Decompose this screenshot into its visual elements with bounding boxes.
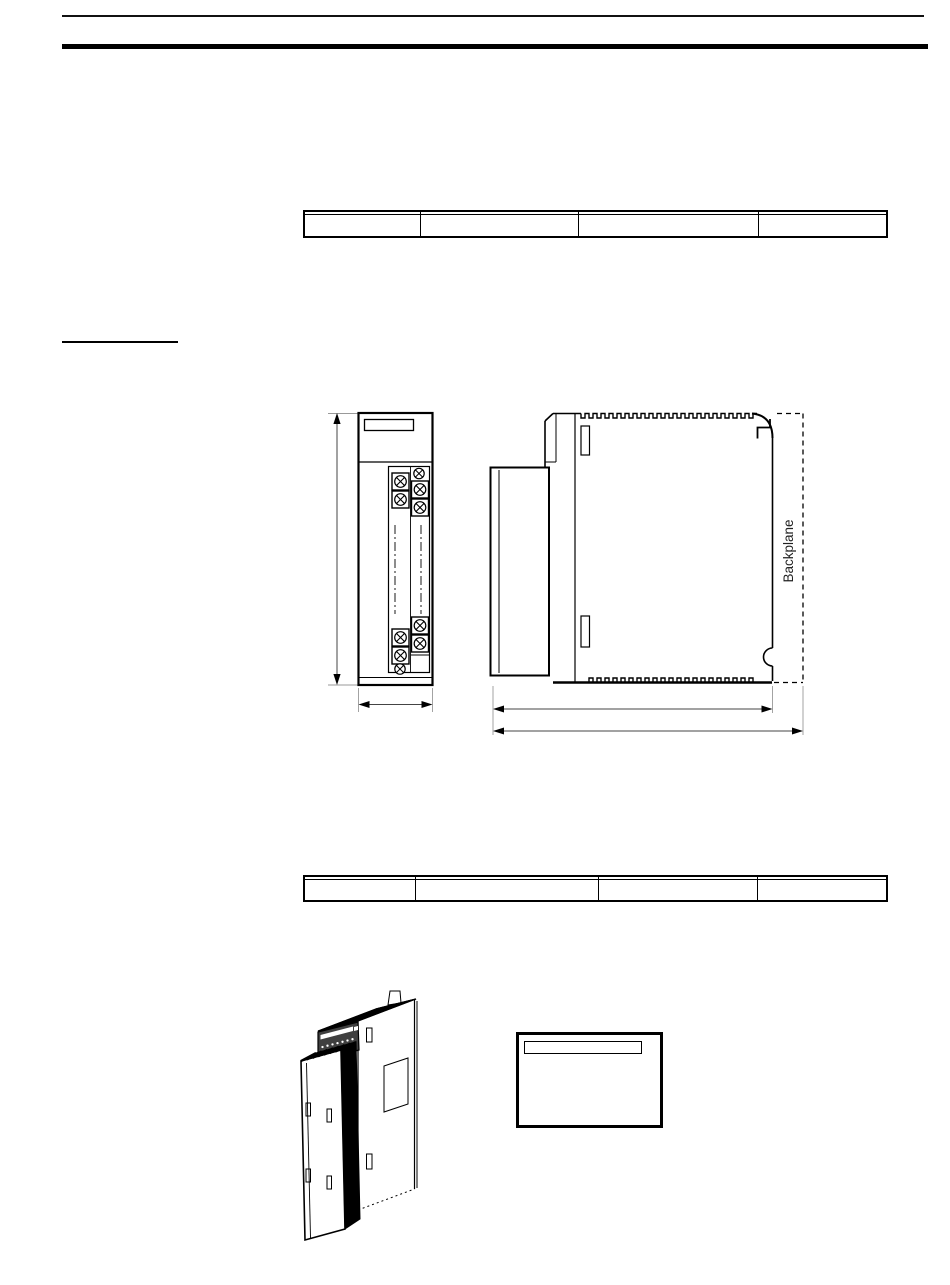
depth-dimension-arrows <box>493 686 803 735</box>
label-box-strip <box>524 1041 642 1054</box>
spec-table-bottom <box>303 875 888 902</box>
screw-terminal-icon <box>392 491 409 508</box>
module-illustration <box>295 980 480 1250</box>
header-rule-thin <box>62 15 924 17</box>
width-dimension-arrow <box>359 688 433 712</box>
blank-label-box <box>516 1032 663 1128</box>
dimensions-drawing: Backplane <box>300 395 820 745</box>
table-cell <box>304 880 416 902</box>
height-dimension-arrow <box>333 413 340 685</box>
terminal-cover-side <box>491 468 550 676</box>
spec-table-top <box>303 210 888 238</box>
table-cell <box>421 215 578 238</box>
side-view: Backplane <box>491 414 804 736</box>
screw-terminal-icon <box>412 481 429 498</box>
table-row <box>304 880 887 902</box>
table-row <box>304 215 887 238</box>
mounting-latch-bottom <box>764 648 773 681</box>
side-label-area <box>384 1058 408 1112</box>
screw-terminal-icon <box>392 473 409 490</box>
screw-terminal-icon <box>412 635 429 652</box>
screw-terminal-icon <box>392 629 409 646</box>
manual-page: Backplane <box>0 0 950 1285</box>
vent-slot-upper <box>581 426 590 455</box>
table-cell <box>759 215 887 238</box>
table-cell <box>757 880 887 902</box>
screw-icon <box>414 468 424 478</box>
table-cell <box>416 880 599 902</box>
header-rule-thick <box>62 44 928 49</box>
table-cell <box>598 880 757 902</box>
backplane-label: Backplane <box>781 519 796 582</box>
body-slot-upper <box>367 1028 373 1042</box>
screw-terminal-icon <box>412 499 429 516</box>
vent-slot-lower <box>581 616 590 647</box>
section-heading-underline <box>62 341 178 343</box>
nameplate-area <box>365 420 414 431</box>
mounting-hook-top <box>752 414 773 439</box>
table-cell <box>578 215 759 238</box>
screw-terminal-icon <box>412 617 429 634</box>
terminal-cover-3d <box>301 1042 360 1240</box>
table-cell <box>304 215 421 238</box>
body-slot-lower <box>367 1154 373 1169</box>
screw-terminal-icon <box>392 647 409 664</box>
front-view <box>328 413 433 712</box>
screw-icon <box>395 664 405 674</box>
